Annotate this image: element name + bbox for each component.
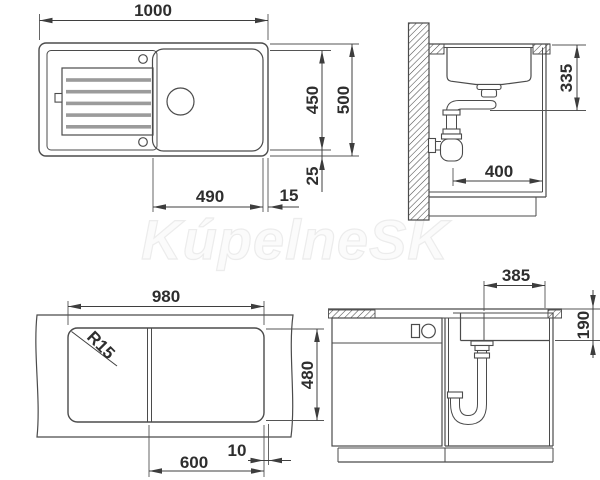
- dishwasher-cabinet: [332, 318, 442, 446]
- drain-hole: [167, 88, 194, 115]
- dimension-rim-offset: 25: [303, 167, 322, 186]
- worktop-section-right: [548, 310, 562, 318]
- dimension-bowl-width: 490: [196, 187, 224, 206]
- dishwasher-knob: [422, 324, 436, 338]
- worktop-section-left: [429, 44, 444, 54]
- sink-cabinet: [445, 313, 553, 446]
- dimension-cutout-width: 980: [152, 287, 180, 306]
- tap-hole-top: [139, 55, 148, 64]
- drainboard-ribs: [66, 78, 151, 128]
- dimension-inner-depth: 450: [303, 86, 322, 114]
- dimension-edge-gap: 15: [280, 186, 299, 205]
- worktop-section-right: [533, 44, 550, 54]
- technical-drawing-sheet: KúpelneSK 1000 450 500 25: [0, 0, 600, 480]
- worktop-section-left: [329, 310, 376, 318]
- front-view: 385 190: [328, 266, 600, 462]
- dimension-bowl-section: 600: [180, 453, 208, 472]
- bowl-section: [447, 48, 531, 85]
- tap-hole-bottom: [139, 138, 148, 147]
- dimension-overall-width: 1000: [134, 1, 172, 20]
- dimension-gap: 10: [228, 441, 247, 460]
- dimension-clearance-width: 400: [485, 162, 513, 181]
- siphon: [448, 341, 494, 425]
- sink-dimension-drawing: KúpelneSK 1000 450 500 25: [0, 0, 600, 480]
- bowl-outline: [153, 49, 264, 151]
- dimension-drain-depth: 335: [557, 64, 576, 92]
- drain-flange: [477, 85, 501, 90]
- dimension-bowl-depth: 190: [574, 311, 593, 339]
- plan-view: 1000 450 500 25 490 15: [39, 1, 359, 212]
- dimension-bowl-width: 385: [502, 266, 530, 285]
- dimension-cutout-depth: 480: [298, 361, 317, 389]
- drainboard-outline: [62, 68, 153, 135]
- plinth: [338, 448, 553, 462]
- overflow-tab: [55, 94, 62, 103]
- dimension-corner-radius: R15: [83, 327, 118, 362]
- wall-section: [409, 23, 430, 220]
- section-view: 335 400: [409, 23, 587, 220]
- watermark-text: KúpelneSK: [141, 208, 451, 271]
- cutout-view: R15 980 480 600 10: [36, 287, 324, 477]
- dishwasher-display: [412, 325, 420, 338]
- siphon-pipes: [429, 101, 497, 162]
- drain-nut: [482, 90, 497, 98]
- dimension-overall-depth: 500: [334, 86, 353, 114]
